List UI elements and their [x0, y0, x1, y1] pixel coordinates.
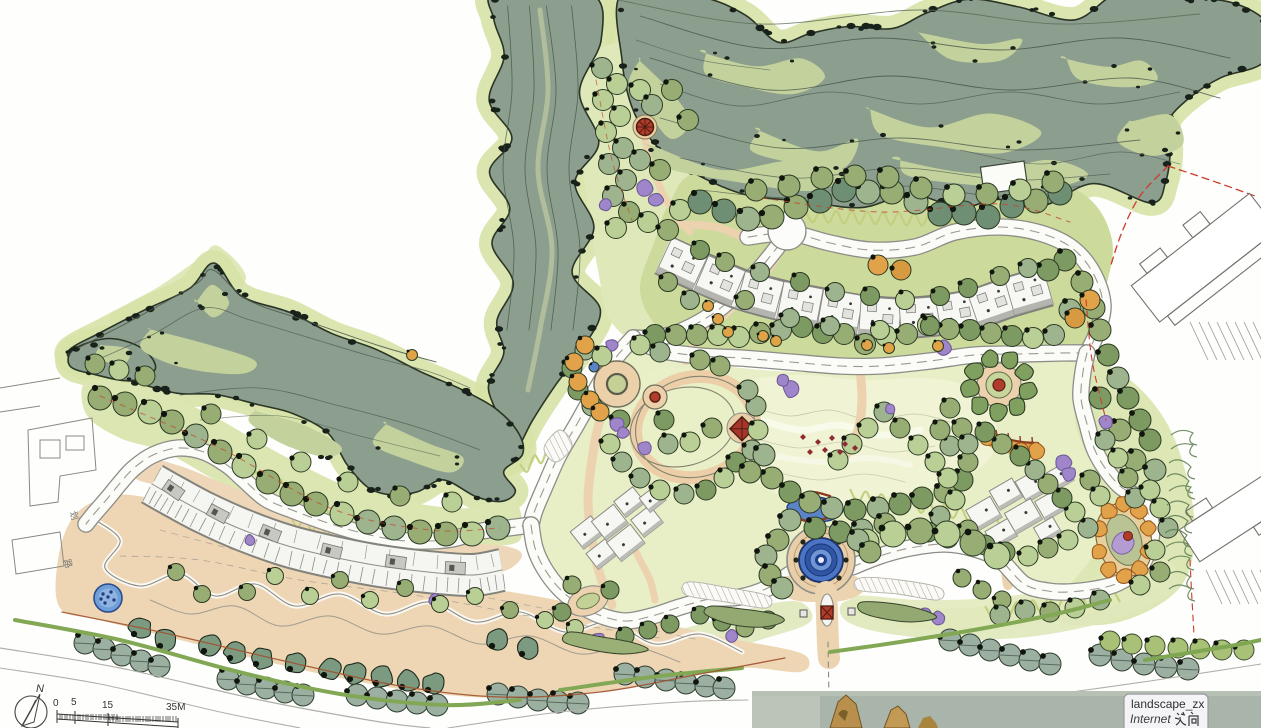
- svg-text:5: 5: [71, 697, 77, 708]
- svg-text:landscape_zx: landscape_zx: [1131, 697, 1204, 711]
- svg-text:N: N: [36, 683, 44, 695]
- svg-text:35M: 35M: [166, 702, 185, 713]
- svg-text:Internet: Internet: [1130, 712, 1171, 726]
- svg-text:15: 15: [102, 700, 114, 711]
- svg-text:0: 0: [53, 698, 59, 709]
